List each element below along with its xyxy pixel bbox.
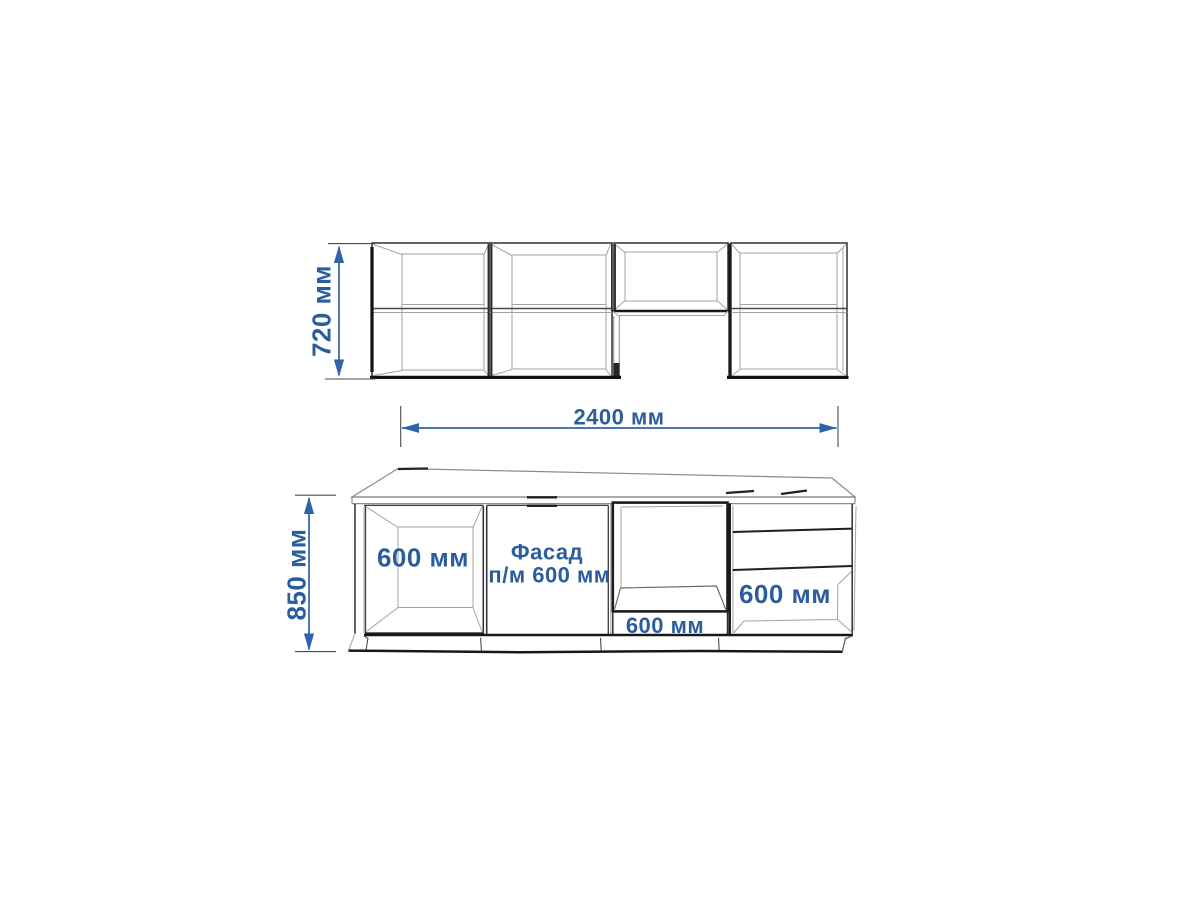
plinth — [349, 636, 853, 652]
dimension-total-length: 2400 мм — [401, 405, 838, 448]
kitchen-drawing: 720 мм 2400 мм 600 мм Ф — [0, 0, 1201, 900]
wall-cabinet-hood — [612, 243, 729, 378]
drawing-canvas: 720 мм 2400 мм 600 мм Ф — [0, 0, 1201, 900]
wall-cabinet-2 — [488, 243, 612, 377]
countertop — [352, 469, 855, 504]
base-cabinets-row: 600 мм Фасад п/м 600 мм 600 мм 600 мм — [349, 503, 857, 653]
wall-cabinet-4 — [730, 243, 847, 377]
drawer-cabinet-label: 600 мм — [739, 579, 831, 609]
wall-cabinets-row — [370, 243, 849, 378]
facade-label-line1: Фасад — [511, 540, 583, 565]
base-left-side-panel — [349, 504, 365, 651]
wall-height-label: 720 мм — [307, 265, 337, 357]
arrowhead-right-icon — [820, 423, 838, 433]
wall-cabinet-1 — [372, 243, 490, 377]
arrowhead-up-icon — [334, 246, 344, 264]
base-open-cabinet-label: 600 мм — [377, 543, 469, 573]
arrowhead-up-icon — [304, 497, 314, 514]
dimension-wall-height: 720 мм — [307, 244, 376, 379]
total-length-label: 2400 мм — [573, 405, 664, 430]
arrowhead-left-icon — [402, 423, 420, 433]
dimension-base-height: 850 мм — [282, 495, 337, 651]
base-cabinet-drawers: 600 мм — [733, 504, 856, 634]
facade-label-line2: п/м 600 мм — [488, 563, 610, 588]
base-cabinet-facade: Фасад п/м 600 мм — [487, 504, 611, 634]
arrowhead-down-icon — [304, 634, 314, 651]
arrowhead-down-icon — [334, 360, 344, 378]
cabinet-divider-1 — [483, 505, 486, 634]
base-cabinet-oven: 600 мм — [613, 503, 728, 638]
base-cabinet-open: 600 мм — [364, 505, 484, 633]
base-height-label: 850 мм — [282, 528, 312, 620]
